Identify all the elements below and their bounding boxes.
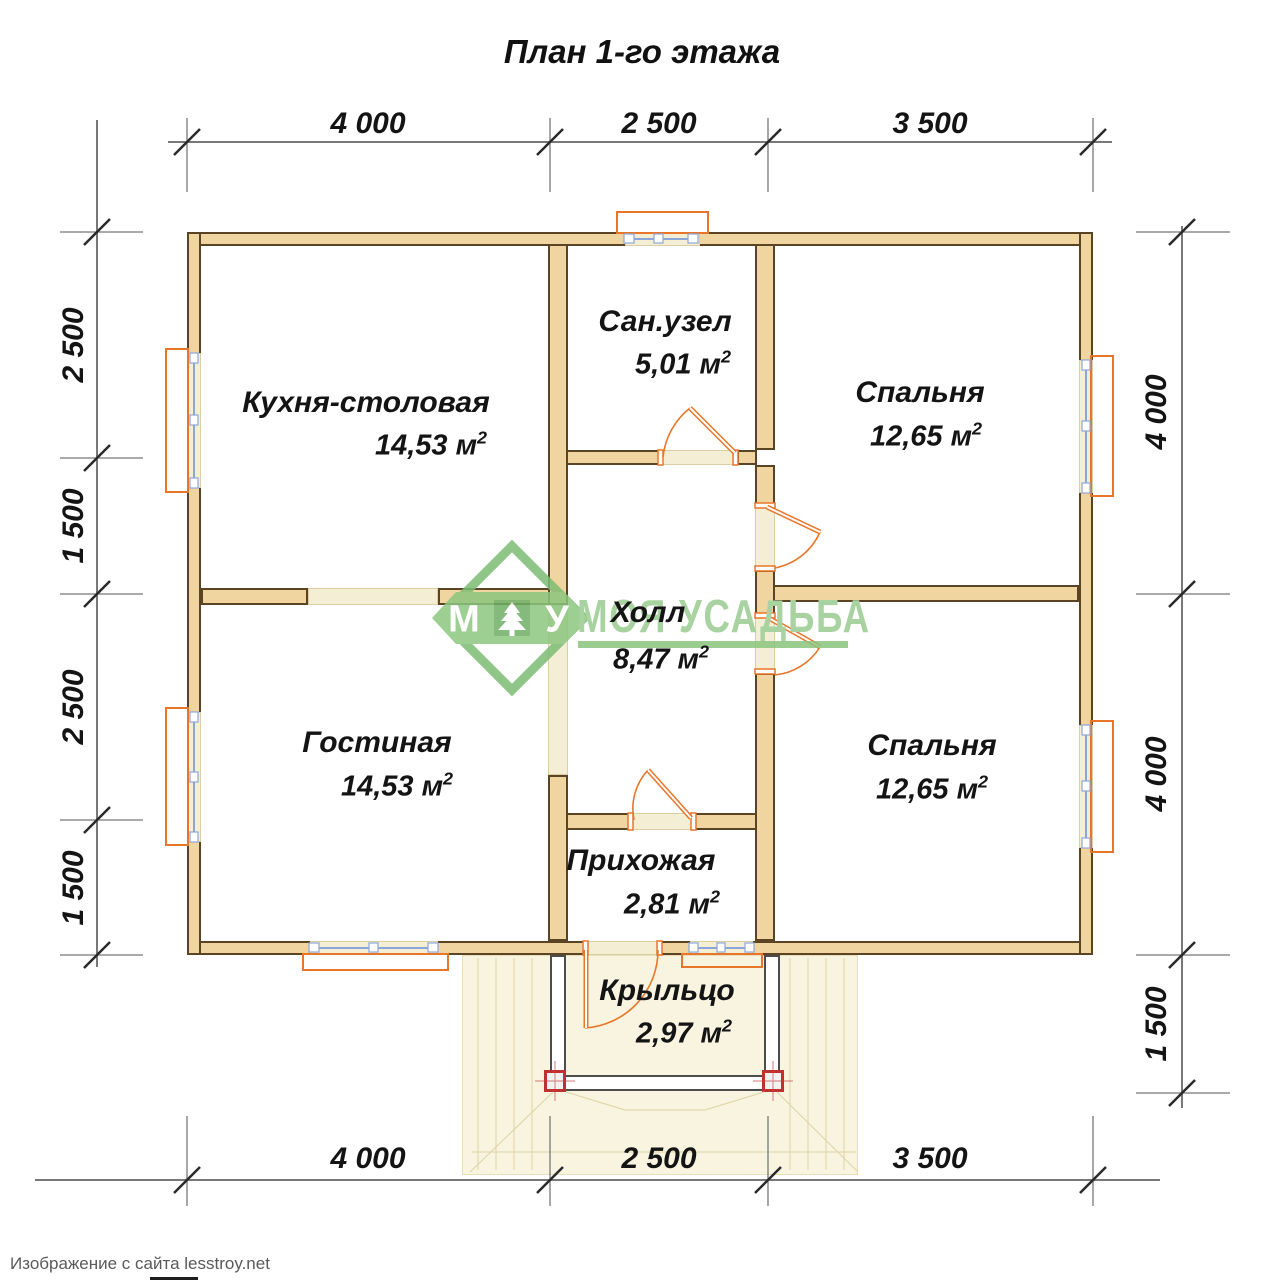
- dim-left-4: 1 500: [57, 850, 91, 925]
- opening-bathroom-door: [660, 450, 737, 465]
- dim-left-1: 2 500: [57, 307, 91, 382]
- area-value: 2,97 м: [636, 1017, 722, 1049]
- area-value: 12,65 м: [870, 420, 972, 452]
- dim-right-1: 4 000: [1140, 374, 1174, 449]
- area-sup: 2: [699, 642, 709, 662]
- opening-front-door: [585, 941, 660, 955]
- area-sup: 2: [972, 419, 982, 439]
- dim-left-3: 2 500: [57, 669, 91, 744]
- area-value: 12,65 м: [876, 773, 978, 805]
- dim-top-3: 3 500: [892, 107, 967, 141]
- wall-bathroom-bottom-a: [566, 450, 660, 465]
- opening-hallway-door: [630, 813, 693, 830]
- dim-bottom-3: 3 500: [892, 1142, 967, 1176]
- opening-window-bedroom2: [1079, 725, 1093, 848]
- area-sup: 2: [443, 769, 453, 789]
- area-value: 5,01 м: [635, 348, 721, 380]
- door-jamb-caps: [583, 450, 775, 955]
- logo-letter-u: У: [545, 599, 569, 642]
- room-label-hall: Холл: [611, 596, 686, 630]
- area-value: 14,53 м: [375, 429, 477, 461]
- page-title: План 1-го этажа: [504, 33, 780, 71]
- opening-kitchen-living: [308, 588, 438, 605]
- dim-bottom-1: 4 000: [330, 1142, 405, 1176]
- room-label-living: Гостиная: [302, 726, 451, 760]
- porch-post-left: [544, 1070, 566, 1092]
- door-leaves: [586, 408, 820, 1028]
- door-arcs: [585, 408, 820, 1028]
- opening-window-living-left: [187, 712, 201, 842]
- wall-hall-bedroom-c: [755, 673, 775, 941]
- opening-window-bedroom1: [1079, 360, 1093, 493]
- opening-window-living-bottom: [310, 941, 438, 955]
- dim-top-2: 2 500: [621, 107, 696, 141]
- area-value: 14,53 м: [341, 770, 443, 802]
- room-area-bathroom: 5,01 м2: [635, 347, 731, 382]
- dim-bottom-2: 2 500: [621, 1142, 696, 1176]
- area-value: 8,47 м: [613, 643, 699, 675]
- room-label-hallway: Прихожая: [567, 844, 716, 878]
- room-label-porch: Крыльцо: [599, 974, 734, 1008]
- fir-tree-icon: [498, 602, 526, 636]
- logo-letter-m: М: [448, 599, 480, 642]
- floor-plan-page: План 1-го этажа: [0, 0, 1280, 1280]
- wall-hall-hallway-a: [566, 813, 630, 830]
- dim-right-2: 4 000: [1140, 736, 1174, 811]
- porch-wall-right: [764, 955, 780, 1087]
- room-label-kitchen: Кухня-столовая: [242, 386, 490, 420]
- porch-post-right: [762, 1070, 784, 1092]
- wall-living-hallway: [548, 775, 568, 941]
- dim-left-2: 1 500: [57, 488, 91, 563]
- wall-exterior-left: [187, 232, 201, 955]
- room-area-hall: 8,47 м2: [613, 642, 709, 677]
- logo-tree-square: [494, 600, 530, 636]
- wall-hall-bedroom-a: [755, 465, 775, 505]
- area-sup: 2: [978, 772, 988, 792]
- room-area-porch: 2,97 м2: [636, 1016, 732, 1051]
- wall-bathroom-bedroom: [755, 244, 775, 450]
- wall-kitchen-living-a: [201, 588, 308, 605]
- room-label-bedroom2: Спальня: [867, 729, 996, 763]
- wall-kitchen-hall: [548, 244, 568, 605]
- wall-bathroom-bottom-b: [737, 450, 757, 465]
- opening-bedroom1-door: [755, 505, 775, 570]
- opening-window-bathroom: [625, 232, 700, 246]
- dim-right-3: 1 500: [1140, 986, 1174, 1061]
- porch-wall-bottom: [550, 1075, 780, 1091]
- area-value: 2,81 м: [624, 888, 710, 920]
- area-sup: 2: [722, 1016, 732, 1036]
- room-area-bedroom1: 12,65 м2: [870, 419, 982, 454]
- opening-window-hallway: [690, 941, 753, 955]
- room-label-bedroom1: Спальня: [855, 376, 984, 410]
- room-area-kitchen: 14,53 м2: [375, 428, 487, 463]
- area-sup: 2: [477, 428, 487, 448]
- room-area-hallway: 2,81 м2: [624, 887, 720, 922]
- dim-top-1: 4 000: [330, 107, 405, 141]
- area-sup: 2: [721, 347, 731, 367]
- attribution-text: Изображение с сайта lesstroy.net: [10, 1254, 270, 1274]
- porch-wall-left: [550, 955, 566, 1087]
- wall-hall-hallway-b: [693, 813, 757, 830]
- opening-window-kitchen: [187, 353, 201, 488]
- room-area-bedroom2: 12,65 м2: [876, 772, 988, 807]
- area-sup: 2: [710, 887, 720, 907]
- room-area-living: 14,53 м2: [341, 769, 453, 804]
- room-label-bathroom: Сан.узел: [598, 305, 731, 339]
